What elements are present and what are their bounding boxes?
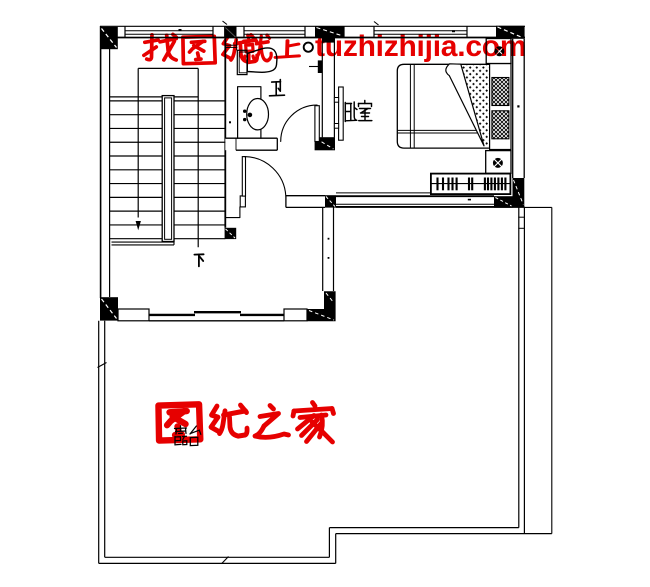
svg-text:tuzhizhijia.com: tuzhizhijia.com (315, 30, 526, 63)
